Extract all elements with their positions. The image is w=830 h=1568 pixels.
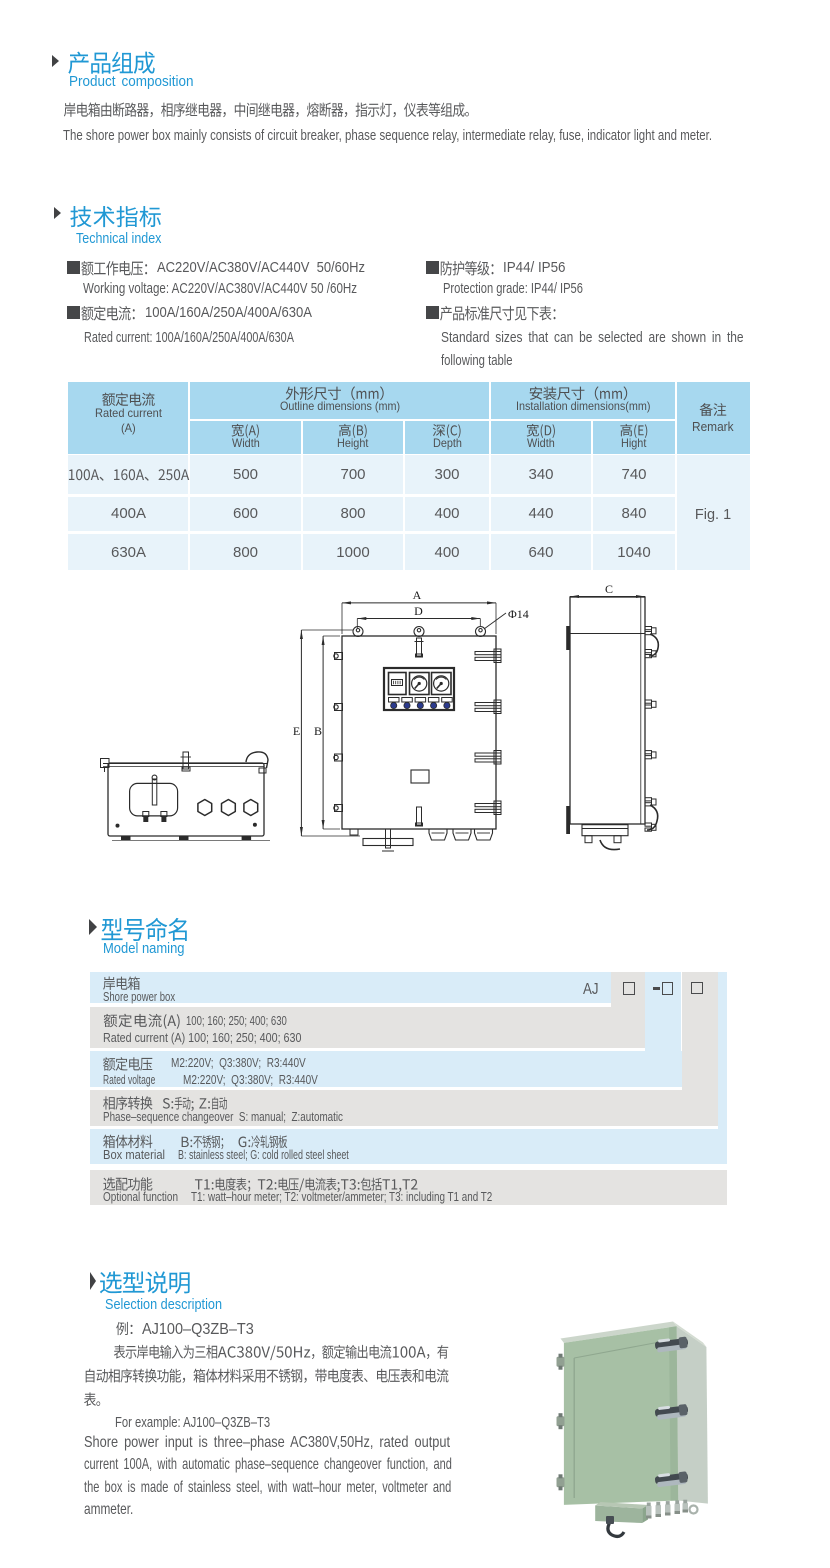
- svg-text:C: C: [605, 582, 613, 596]
- svg-text:D: D: [414, 604, 423, 618]
- svg-text:Φ14: Φ14: [508, 607, 529, 621]
- svg-text:B: B: [314, 724, 322, 738]
- svg-text:E: E: [293, 724, 300, 738]
- svg-text:A: A: [413, 588, 422, 602]
